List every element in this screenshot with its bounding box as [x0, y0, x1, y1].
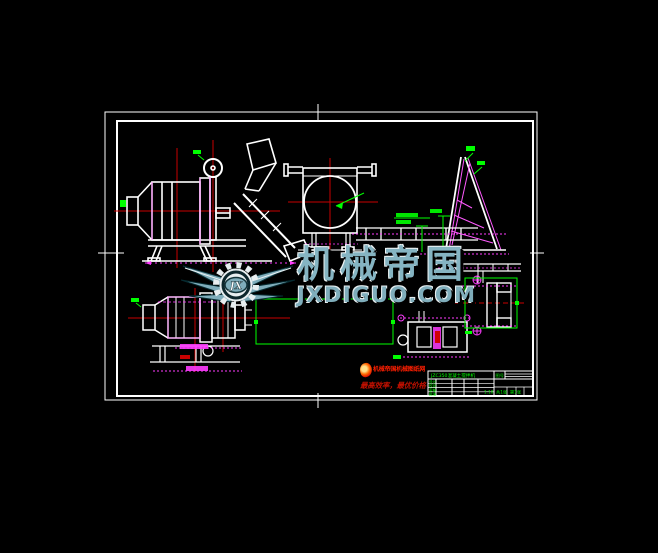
- scale-value: 1:10: [484, 390, 494, 395]
- view-hopper-frame: [441, 157, 506, 250]
- annotation-text: [477, 161, 485, 165]
- title-block: JZC350混凝土搅拌机 图号 1:10 共1张 第1张 设计 校对 审核 批准: [428, 371, 533, 397]
- winged-gear-logo: JX: [181, 252, 295, 314]
- view-side-elevation: [127, 139, 310, 261]
- drawing-title: JZC350混凝土搅拌机: [430, 372, 475, 379]
- annotation-text: [466, 146, 475, 151]
- sheet-count: 共1张: [496, 389, 508, 396]
- annotation-text: [393, 355, 401, 359]
- grip-handle: [391, 320, 395, 324]
- annotation-text: [430, 209, 442, 213]
- flame-icon: [359, 362, 374, 378]
- annotation-text: [131, 298, 139, 302]
- vendor-slogan: 最高效率，最优价格: [360, 380, 430, 391]
- dimension-text: [435, 331, 440, 343]
- watermark: JX 机械帝国 JXDIGUO.COM: [181, 248, 477, 314]
- dimension-text: [180, 355, 190, 359]
- leader-arrow: [336, 193, 364, 206]
- annotation-text: [193, 150, 201, 154]
- annotation-text: [396, 220, 411, 224]
- center-mark-left: [98, 246, 124, 260]
- dimension-text: [180, 344, 208, 349]
- dimension-text: [186, 366, 208, 371]
- vendor-stamp: 机械帝国机械图纸网 最高效率，最优价格: [360, 363, 430, 391]
- center-mark-top: [311, 104, 325, 120]
- row-label: 批准: [429, 392, 437, 397]
- annotation-text: [120, 200, 126, 207]
- grip-handle: [254, 320, 258, 324]
- watermark-brand: 机械帝国: [297, 248, 477, 282]
- feed-chute: [247, 139, 276, 170]
- row-label: 设计: [429, 379, 437, 384]
- sheet-number: 第1张: [510, 389, 522, 396]
- vendor-company-name: 机械帝国机械图纸网: [373, 367, 427, 373]
- balloon-callout: [398, 335, 408, 345]
- drawing-number-label: 图号: [496, 373, 504, 379]
- drawing-canvas: JZC350混凝土搅拌机 图号 1:10 共1张 第1张 设计 校对 审核 批准…: [0, 0, 658, 553]
- view-detail-track: [398, 311, 467, 352]
- monogram-text: JX: [228, 281, 244, 292]
- grip-handle: [515, 301, 519, 305]
- watermark-domain: JXDIGUO.COM: [297, 283, 477, 307]
- annotation-text: [396, 213, 418, 217]
